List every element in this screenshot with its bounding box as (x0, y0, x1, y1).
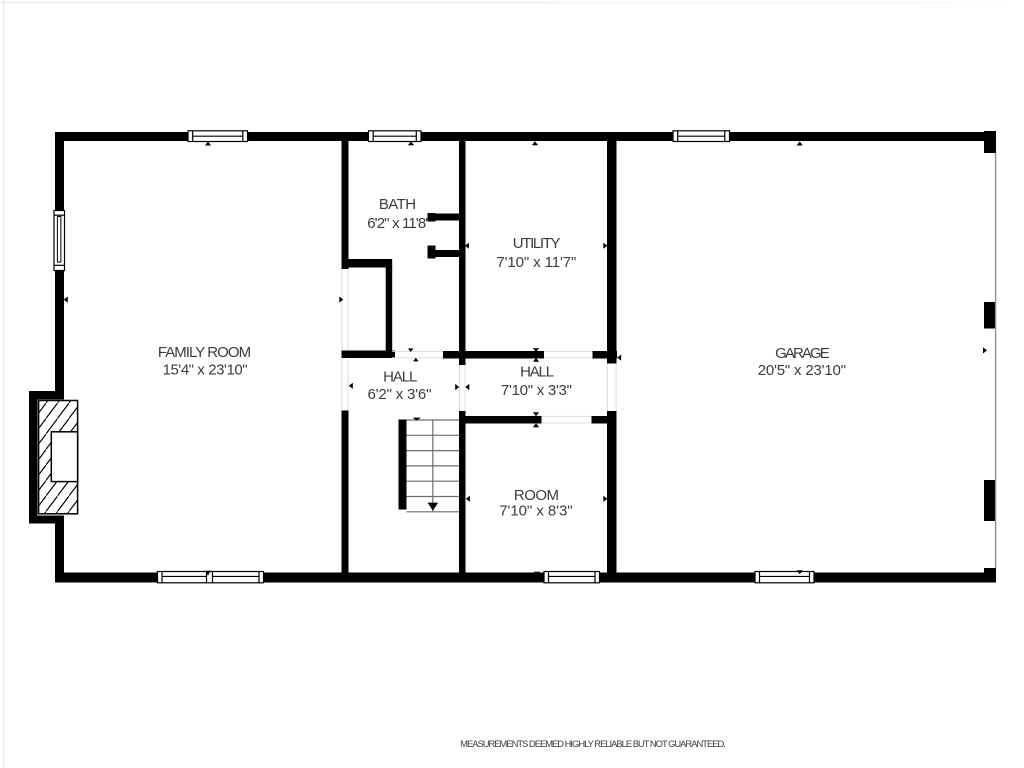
svg-text:6'2" x 3'6": 6'2" x 3'6" (368, 386, 432, 403)
svg-text:HALL: HALL (520, 364, 554, 381)
svg-text:7'10" x 11'7": 7'10" x 11'7" (496, 254, 576, 271)
svg-text:20'5" x 23'10": 20'5" x 23'10" (758, 362, 846, 379)
svg-text:UTILITY: UTILITY (513, 235, 561, 252)
svg-text:15'4" x 23'10": 15'4" x 23'10" (163, 361, 248, 378)
svg-text:FAMILY ROOM: FAMILY ROOM (158, 344, 251, 361)
svg-text:ROOM: ROOM (514, 487, 559, 504)
svg-text:7'10" x 8'3": 7'10" x 8'3" (499, 503, 572, 520)
svg-text:6'2" x 11'8": 6'2" x 11'8" (367, 215, 430, 232)
svg-text:7'10" x 3'3": 7'10" x 3'3" (501, 382, 572, 399)
svg-text:GARAGE: GARAGE (775, 345, 830, 362)
svg-text:MEASUREMENTS DEEMED HIGHLY REL: MEASUREMENTS DEEMED HIGHLY RELIABLE BUT … (460, 738, 725, 749)
svg-text:HALL: HALL (383, 368, 417, 385)
svg-text:BATH: BATH (379, 196, 416, 213)
